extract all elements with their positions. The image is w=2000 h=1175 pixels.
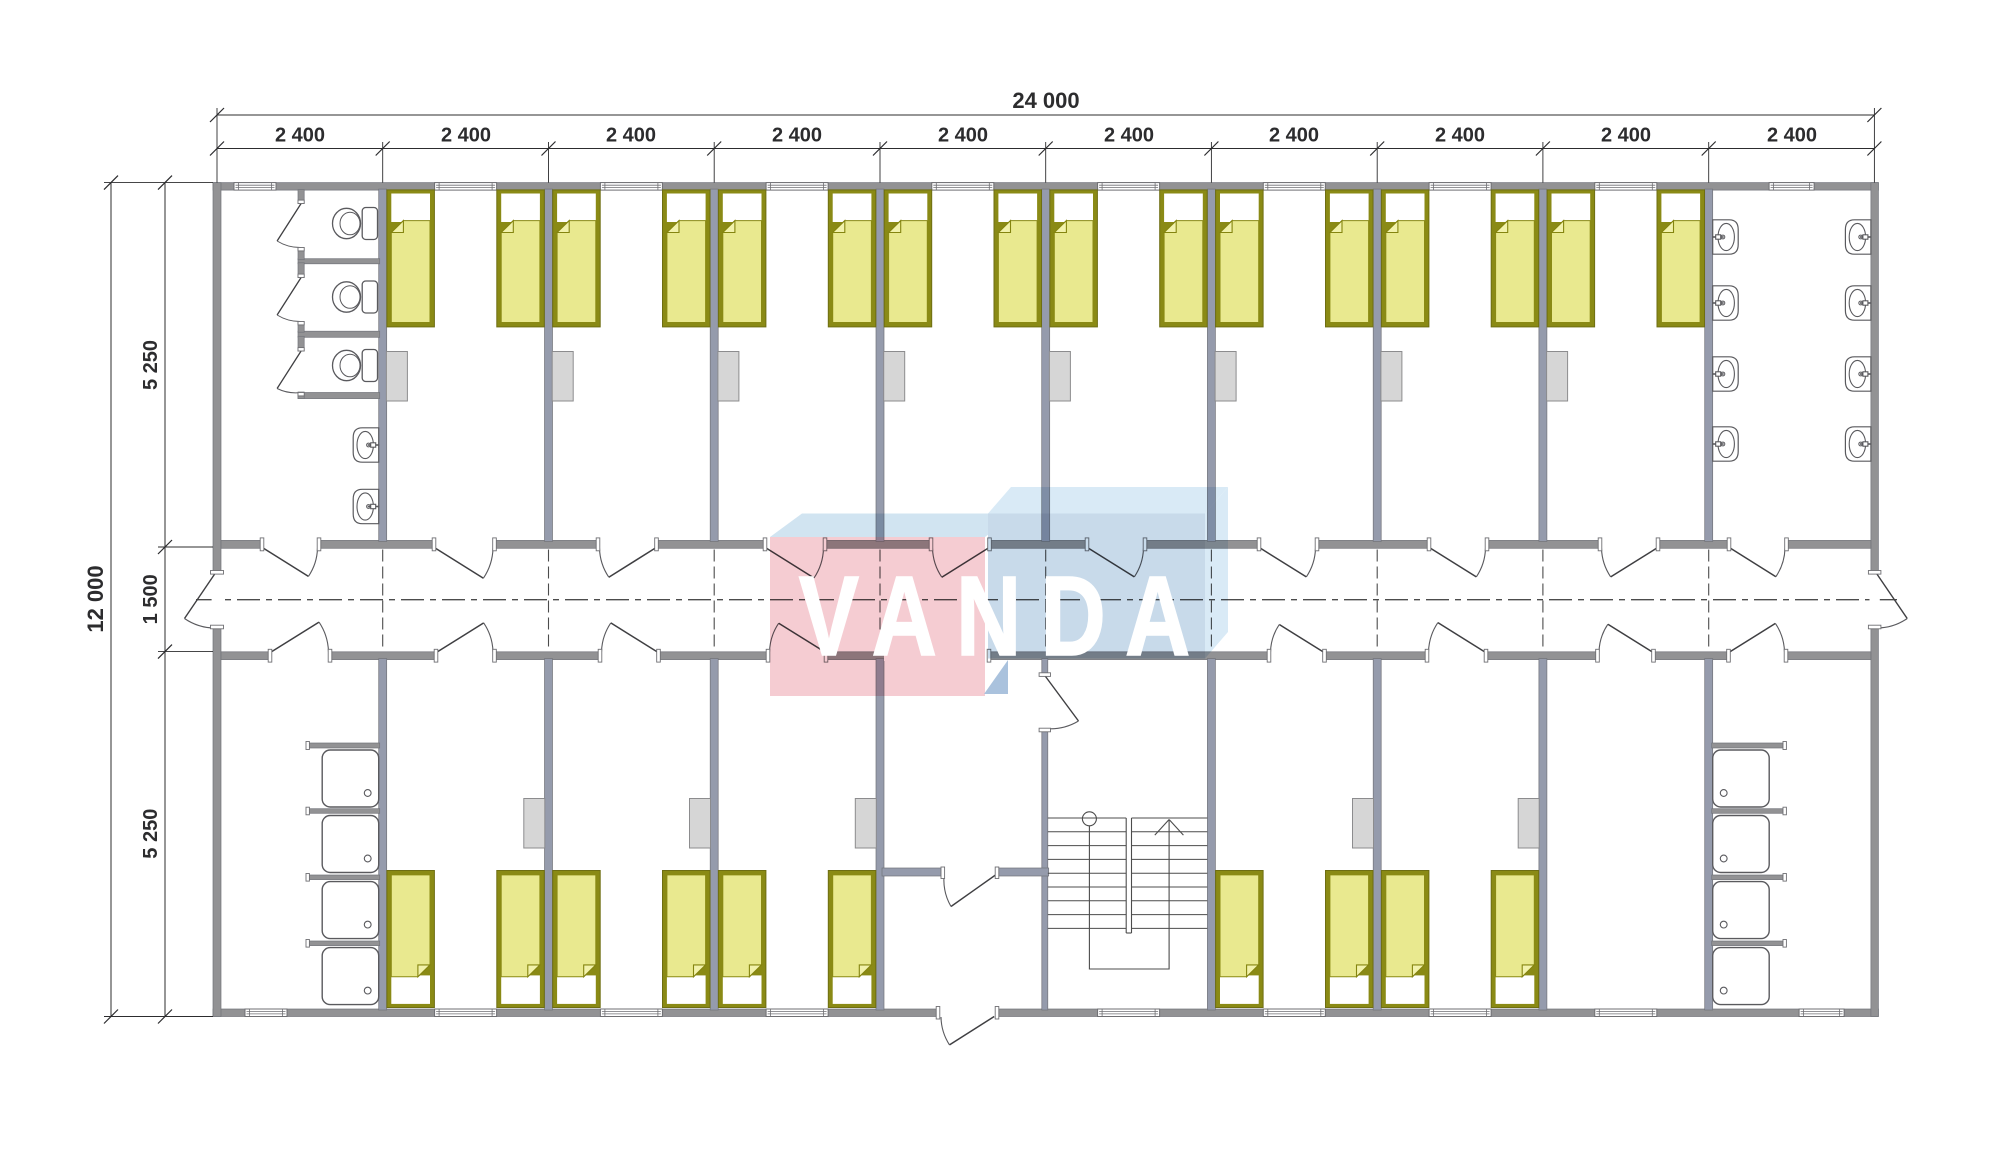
svg-text:VANDA: VANDA — [799, 552, 1210, 679]
svg-text:2 400: 2 400 — [938, 125, 988, 147]
svg-text:2 400: 2 400 — [1104, 125, 1154, 147]
svg-text:2 400: 2 400 — [441, 125, 491, 147]
svg-text:2 400: 2 400 — [606, 125, 656, 147]
svg-text:24 000: 24 000 — [1012, 88, 1079, 113]
svg-text:2 400: 2 400 — [1601, 125, 1651, 147]
svg-text:12 000: 12 000 — [83, 565, 108, 632]
svg-text:2 400: 2 400 — [1767, 125, 1817, 147]
svg-text:5 250: 5 250 — [140, 809, 162, 859]
svg-text:2 400: 2 400 — [1435, 125, 1485, 147]
svg-text:2 400: 2 400 — [1269, 125, 1319, 147]
svg-text:5 250: 5 250 — [140, 340, 162, 390]
svg-text:2 400: 2 400 — [275, 125, 325, 147]
svg-text:1 500: 1 500 — [140, 574, 162, 624]
svg-text:2 400: 2 400 — [772, 125, 822, 147]
